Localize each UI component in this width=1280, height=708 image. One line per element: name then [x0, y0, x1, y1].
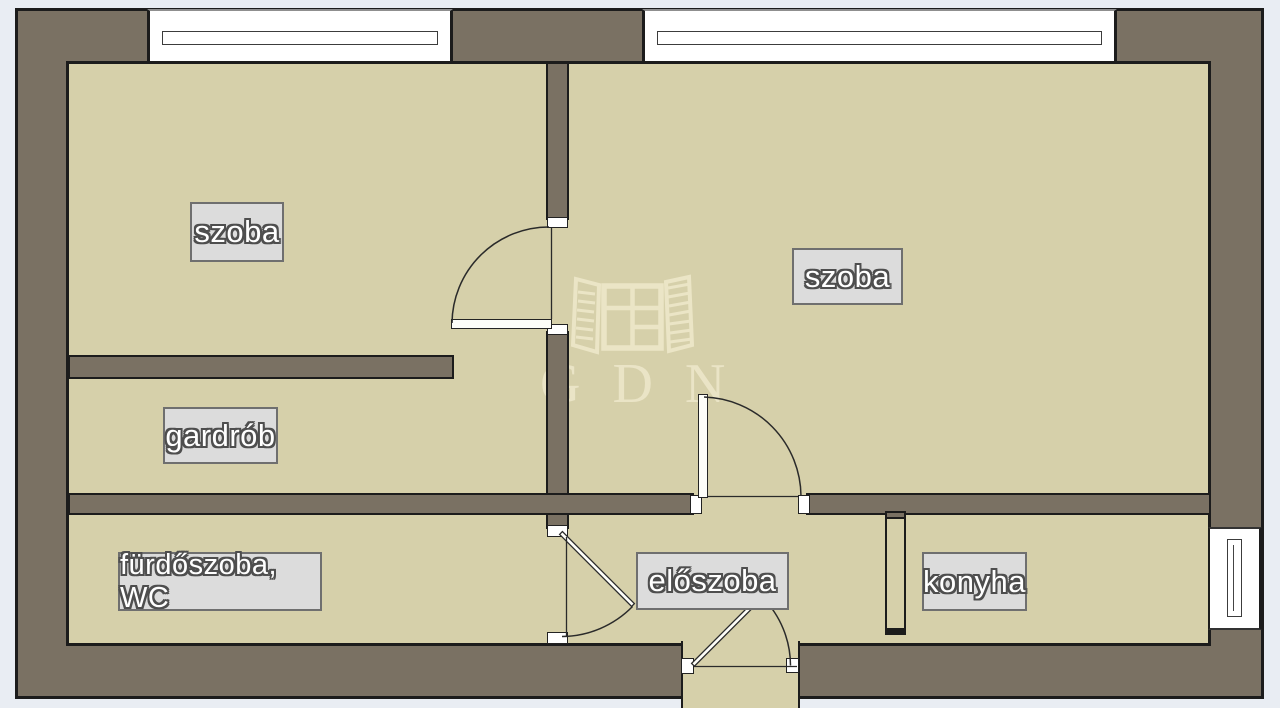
room-label-text: konyha: [923, 564, 1026, 600]
room-label-text: előszoba: [648, 563, 776, 599]
room-label-furdoszoba-wc: fürdőszoba, WC: [118, 552, 322, 611]
room-label-text: gardrób: [165, 418, 275, 454]
room-label-text: fürdőszoba, WC: [120, 549, 320, 615]
room-label-gardrob: gardrób: [163, 407, 278, 464]
room-label-eloszoba: előszoba: [636, 552, 789, 610]
door-arc-furdoszoba: [560, 532, 635, 637]
room-label-text: szoba: [805, 259, 890, 295]
room-label-szoba-1: szoba: [190, 202, 284, 262]
floorplan-canvas: GDN: [0, 0, 1280, 708]
room-label-szoba-2: szoba: [792, 248, 903, 305]
door-arc-szoba1: [452, 227, 552, 323]
door-arc-szoba2: [704, 397, 801, 497]
room-label-konyha: konyha: [922, 552, 1027, 611]
room-label-text: szoba: [194, 214, 279, 250]
